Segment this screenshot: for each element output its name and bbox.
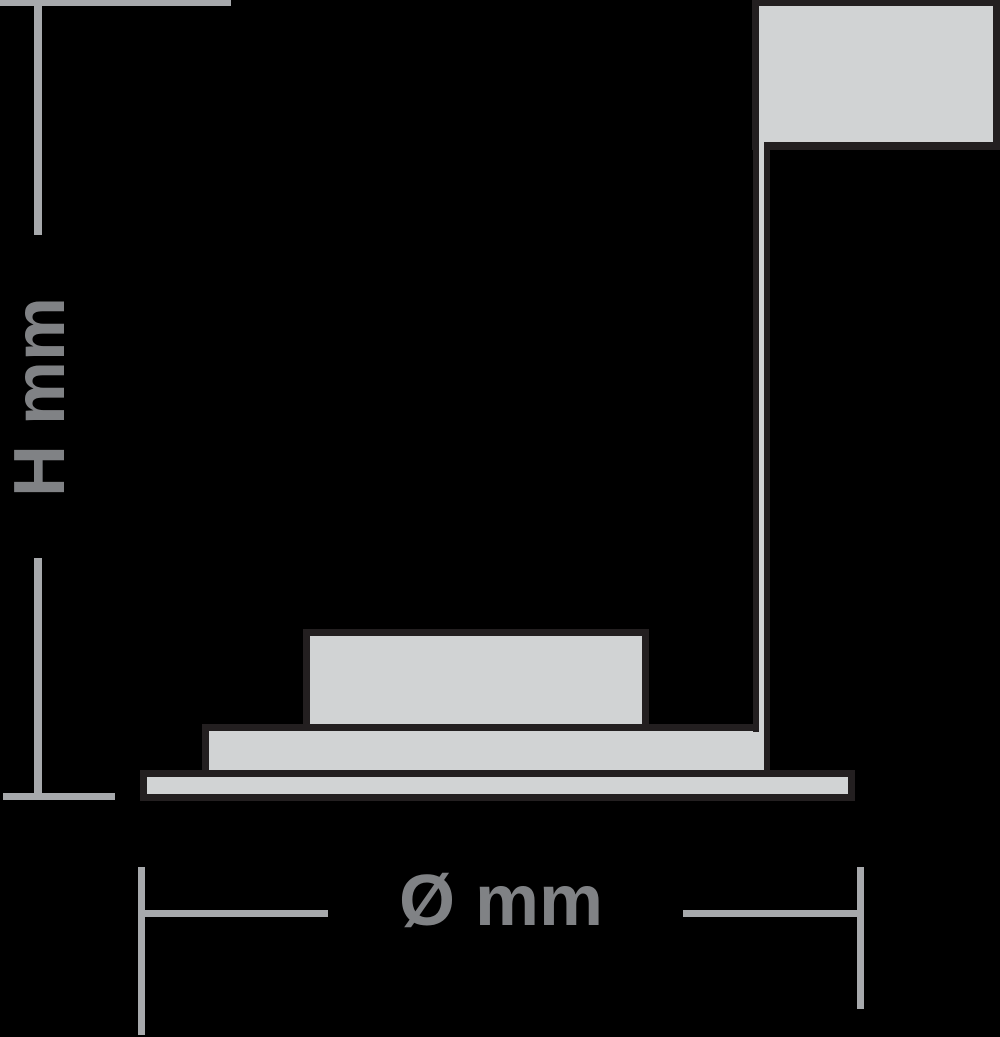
diameter-dim-line-left [141, 910, 328, 917]
housing-step [202, 724, 759, 770]
height-dim-line-upper [34, 0, 42, 235]
lamp-body [303, 629, 649, 724]
diameter-dim-label: Ø mm [399, 865, 603, 937]
junction-box [752, 0, 1000, 150]
height-dim-label: H mm [4, 297, 76, 497]
height-dim-bottom-tick [3, 793, 115, 800]
dimension-drawing: H mm Ø mm [0, 0, 1000, 1037]
stem-right-edge [764, 142, 770, 776]
trim-flange [140, 770, 855, 801]
diameter-dim-right-tick [857, 867, 864, 1009]
height-dim-line-lower [34, 558, 42, 798]
junction-box-fill [759, 6, 993, 142]
diameter-dim-line-right [683, 910, 860, 917]
diameter-dim-left-tick [138, 867, 145, 1035]
